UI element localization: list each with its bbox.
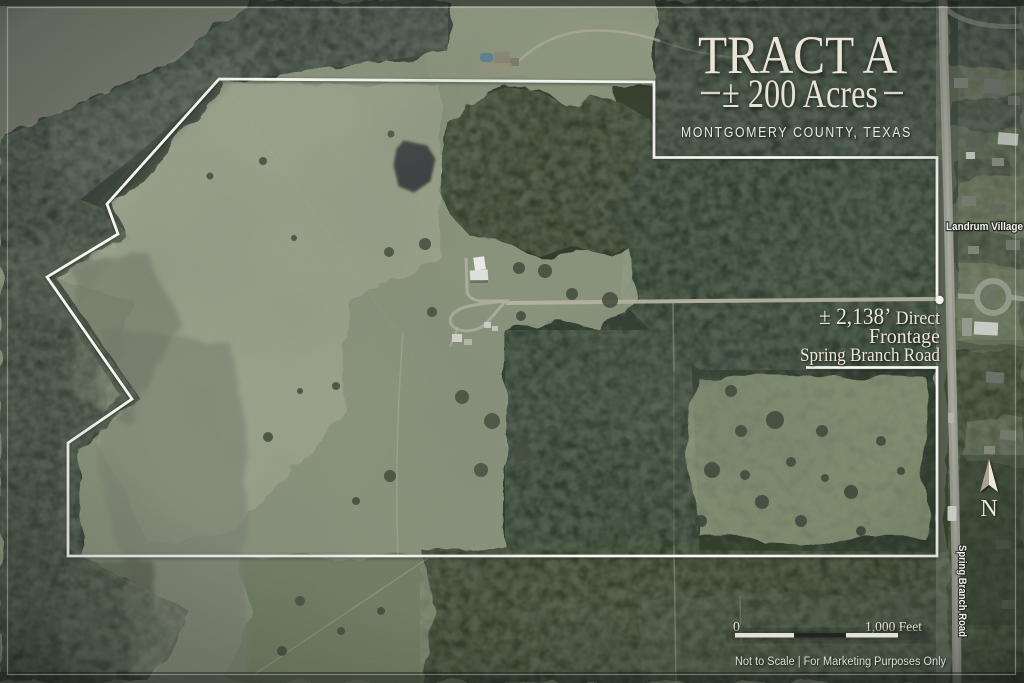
svg-text:Landrum Village: Landrum Village <box>946 221 1023 233</box>
svg-text:Spring Branch Road: Spring Branch Road <box>800 346 941 366</box>
svg-text:Spring Branch Road: Spring Branch Road <box>956 545 968 637</box>
svg-text:Frontage: Frontage <box>869 324 940 348</box>
svg-text:Not to Scale | For Marketing: Not to Scale | For Marketing Purposes On… <box>735 656 946 668</box>
svg-text:N: N <box>980 496 997 522</box>
svg-text:± 200 Acres: ± 200 Acres <box>722 71 878 116</box>
svg-text:MONTGOMERY COUNTY, TEXAS: MONTGOMERY COUNTY, TEXAS <box>681 125 912 141</box>
